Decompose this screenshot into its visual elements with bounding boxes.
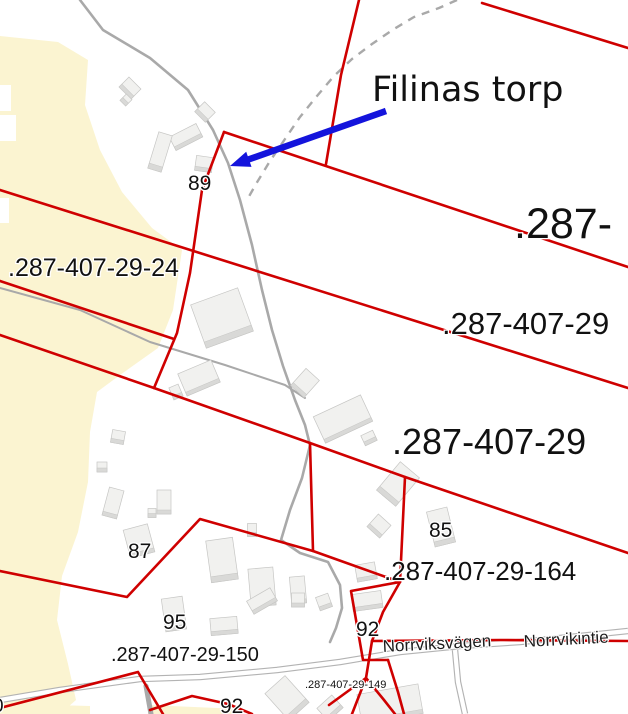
annotation-layer: [230, 111, 386, 167]
building-side: [157, 510, 171, 514]
parcel-label: 0: [0, 696, 4, 714]
map-canvas: Filinas torp.287-.287-407-29.287-407-29.…: [0, 0, 628, 714]
field-area: [0, 36, 182, 714]
buildings-layer: [97, 77, 456, 714]
building: [169, 124, 203, 151]
building: [119, 77, 141, 99]
parcel-label: .287-407-29: [442, 306, 609, 341]
parcel-label: .287-407-29-24: [8, 254, 179, 282]
building: [292, 593, 305, 607]
building-side: [97, 468, 107, 472]
building: [191, 288, 254, 348]
map-viewport[interactable]: Filinas torp.287-.287-407-29.287-407-29.…: [0, 0, 628, 714]
building-side: [148, 514, 156, 518]
building: [210, 616, 238, 635]
building: [148, 509, 156, 518]
building: [157, 490, 171, 514]
building: [315, 593, 332, 611]
parcel-label: 87: [128, 540, 151, 563]
building: [102, 487, 124, 519]
building: [265, 676, 309, 714]
pointer-arrow-head: [230, 152, 252, 167]
parcel-label: .287-407-29-164: [384, 556, 576, 586]
parcel-label: .287-407-29: [392, 421, 586, 462]
parcel-boundary: [310, 443, 313, 551]
building: [206, 537, 239, 582]
parcel-boundary: [482, 3, 628, 48]
field-gap: [0, 115, 16, 141]
parcel-label: 92: [356, 618, 379, 641]
building: [367, 514, 391, 538]
parcel-label: .287-407-29-150: [111, 644, 259, 666]
pointer-arrow-shaft: [246, 111, 386, 160]
building: [178, 360, 221, 396]
parcel-label: 92: [220, 695, 243, 714]
building: [97, 462, 107, 472]
parcel-label: .287-407-29-149: [305, 679, 386, 691]
road-name-label: Norrvikintie: [523, 628, 609, 651]
building: [351, 590, 383, 611]
parcel-label: .287-: [514, 200, 612, 248]
building: [110, 429, 125, 444]
road-name-label: Norrviksvägen: [382, 631, 492, 656]
field-gap: [0, 85, 11, 111]
place-annotation-label: Filinas torp: [372, 70, 564, 110]
parcel-label: 89: [188, 172, 211, 195]
parcel-label: 95: [163, 611, 186, 634]
building: [361, 430, 377, 445]
parcel-boundary: [326, 0, 359, 164]
building: [291, 368, 320, 397]
building-side: [292, 603, 305, 607]
field-area: [18, 704, 90, 714]
parcel-label: 85: [429, 519, 452, 542]
field-gap: [0, 198, 9, 223]
building: [148, 132, 172, 172]
